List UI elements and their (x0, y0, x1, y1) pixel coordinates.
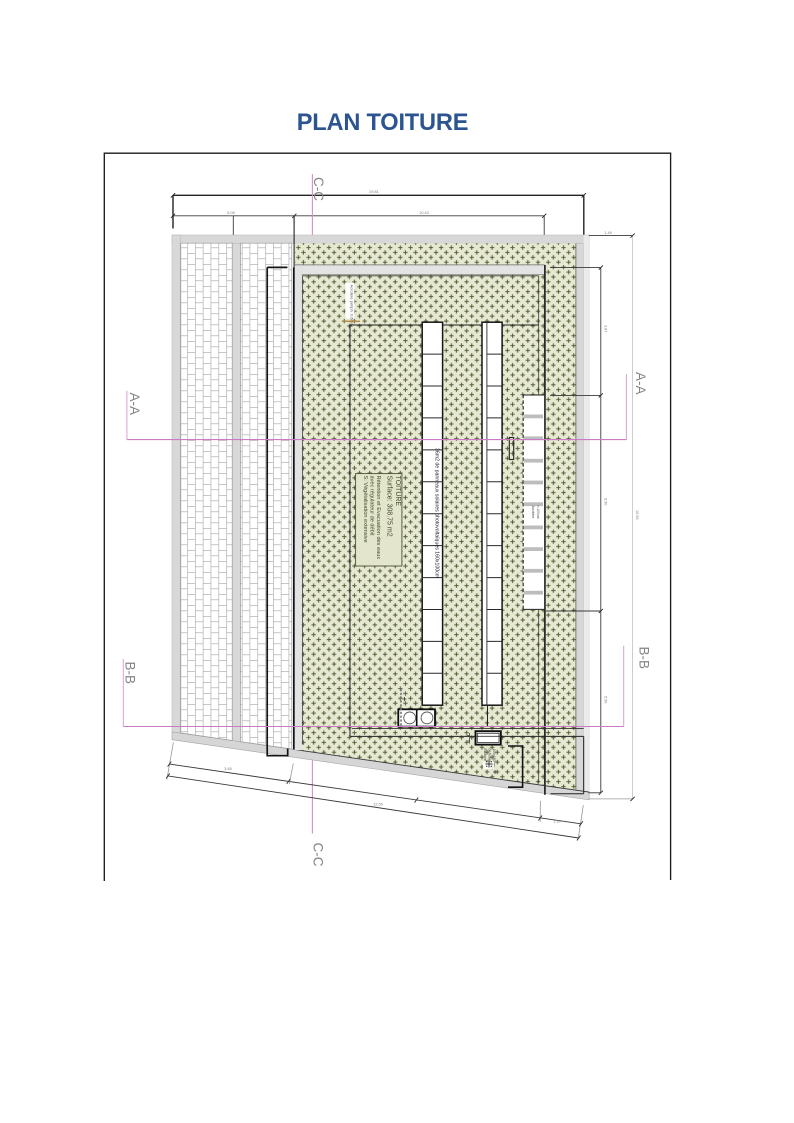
svg-text:A-A: A-A (633, 372, 648, 395)
svg-text:10.43: 10.43 (419, 211, 429, 215)
svg-text:PLAN TOITURE: PLAN TOITURE (297, 110, 469, 136)
svg-text:C-C: C-C (310, 843, 325, 867)
svg-text:TOITURE: TOITURE (394, 476, 401, 507)
svg-text:1.30: 1.30 (553, 820, 560, 824)
svg-text:Rétention et Evacuation des ea: Rétention et Evacuation des eaux (375, 476, 381, 560)
svg-text:B-B: B-B (123, 662, 138, 685)
svg-text:5.50: 5.50 (604, 696, 608, 703)
svg-text:1.49: 1.49 (604, 231, 611, 235)
svg-text:3.87: 3.87 (604, 325, 608, 332)
svg-text:C-C: C-C (311, 177, 326, 201)
svg-text:B-B: B-B (637, 647, 652, 670)
svg-text:16.96: 16.96 (635, 510, 639, 520)
svg-text:5.06: 5.06 (227, 211, 234, 215)
svg-text:avec régulateur de débit: avec régulateur de débit (369, 476, 375, 536)
svg-text:A-A: A-A (127, 393, 142, 416)
svg-text:12.55: 12.55 (373, 803, 383, 807)
svg-text:3.65: 3.65 (224, 767, 231, 771)
svg-text:36m2 de panneaux solaires phot: 36m2 de panneaux solaires photovoltaïque… (434, 448, 440, 578)
svg-text:Acrotère: Acrotère (531, 506, 535, 519)
svg-text:h:100cm: h:100cm (536, 506, 540, 519)
svg-text:6.50: 6.50 (604, 498, 608, 505)
svg-text:S: Végétalisation extensive: S: Végétalisation extensive (362, 476, 368, 543)
svg-text:Surface: 308.75 m2: Surface: 308.75 m2 (386, 476, 393, 537)
svg-text:29.81: 29.81 (369, 190, 379, 194)
svg-text:Exutoire: Exutoire (483, 749, 487, 762)
